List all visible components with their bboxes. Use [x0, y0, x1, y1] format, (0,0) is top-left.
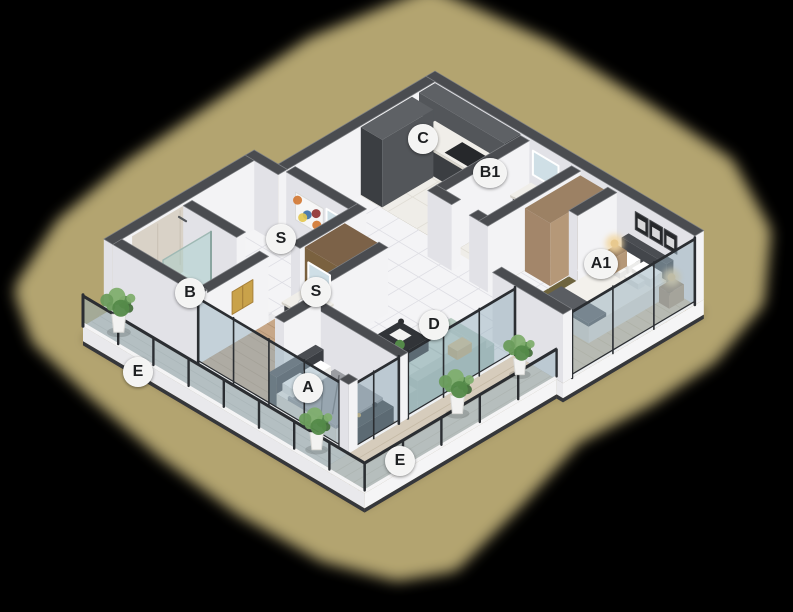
sw-pier: [349, 379, 358, 453]
potted-plant: [310, 433, 323, 450]
potted-plant: [112, 314, 126, 332]
isometric-floorplan-render: [0, 0, 793, 612]
wall-living-bedroom1: [399, 352, 408, 423]
wall-a1-south: [563, 309, 572, 383]
exterior-wall-ne: [695, 231, 704, 305]
exterior-wall-jog: [278, 169, 287, 243]
floorplan-stage: CB1A1SSBEADE: [0, 0, 793, 612]
potted-plant: [450, 396, 464, 414]
wall: [452, 199, 461, 270]
potted-plant: [514, 358, 527, 374]
